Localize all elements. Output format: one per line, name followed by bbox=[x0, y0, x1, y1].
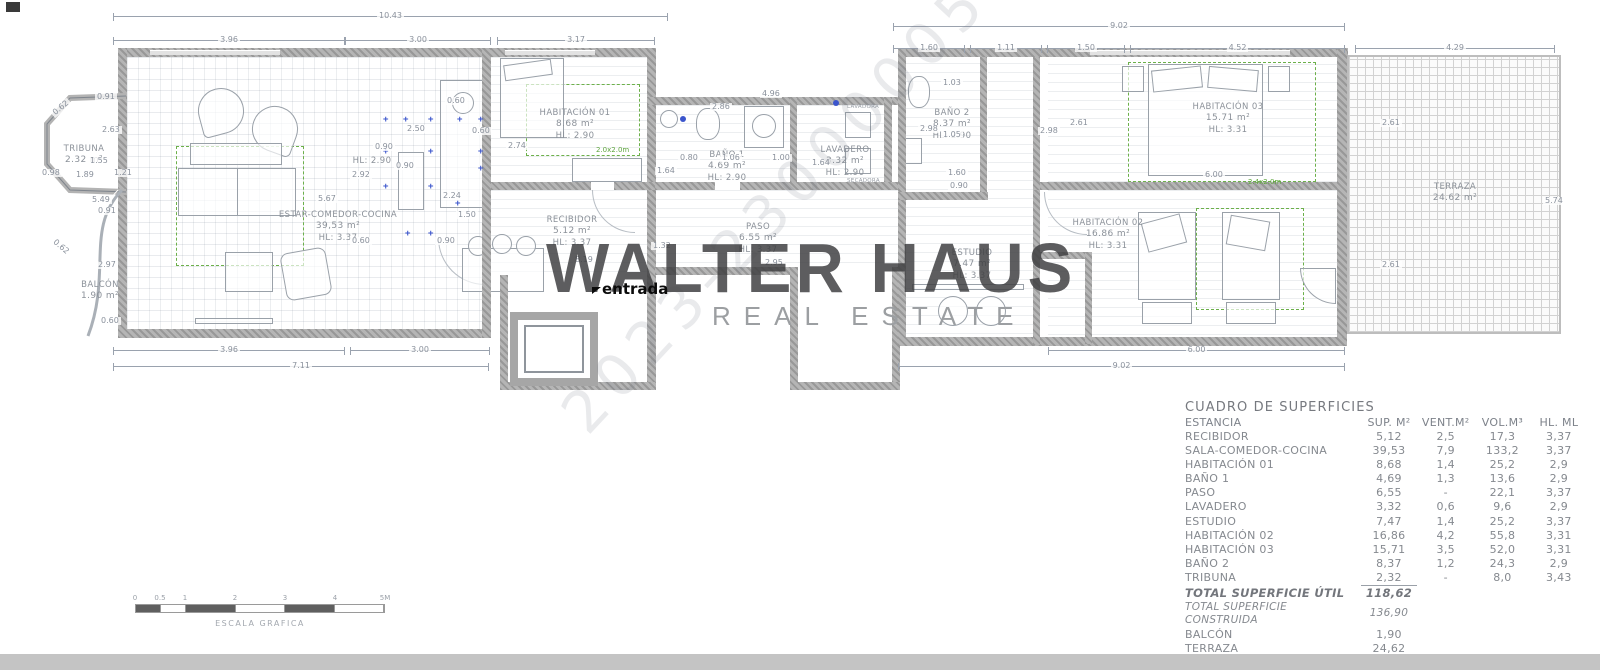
dining-chair bbox=[516, 236, 536, 256]
dim-label: 2.98 bbox=[918, 125, 940, 133]
shower-drain bbox=[752, 114, 776, 138]
sideboard bbox=[190, 143, 282, 165]
dimension-line: 4.52 bbox=[1130, 48, 1345, 52]
dining-chair bbox=[492, 234, 512, 254]
dimension-line: 3.00 bbox=[350, 350, 490, 354]
floor-hall bbox=[988, 63, 1033, 192]
plumbing-mark: + bbox=[478, 165, 483, 174]
room-label-hab03: HABITACIÓN 0315.71 m²HL: 3.31 bbox=[1193, 102, 1264, 136]
wardrobe bbox=[572, 158, 642, 182]
scale-bar: 0 0.5 1 2 3 4 5M ESCALA GRAFICA bbox=[135, 594, 385, 628]
dim-label: 1.05 bbox=[941, 131, 963, 139]
dim-label: 0.60 bbox=[470, 127, 492, 135]
wall bbox=[1040, 182, 1345, 190]
dim-label: 6.00 bbox=[1203, 171, 1225, 179]
wall bbox=[898, 192, 988, 200]
dim-label: 4.96 bbox=[760, 90, 782, 98]
scale-bar-caption: ESCALA GRAFICA bbox=[135, 619, 385, 628]
wall bbox=[898, 337, 1345, 346]
sink bbox=[660, 110, 678, 128]
dim-label: 1.06 bbox=[720, 154, 742, 162]
dim-label: 2.61 bbox=[1380, 261, 1402, 269]
dim-label: 1.21 bbox=[112, 169, 134, 177]
dim-label: 0.60 bbox=[99, 317, 121, 325]
surface-table-header: ESTANCIA SUP. M² VENT.M² VOL.M³ HL. ML bbox=[1185, 416, 1587, 430]
entrance-arrow-icon bbox=[592, 287, 601, 294]
toilet bbox=[696, 108, 720, 140]
dimension-line: 9.02 bbox=[898, 366, 1345, 370]
plumbing-mark: + bbox=[478, 116, 483, 125]
dim-label: 0.90 bbox=[394, 162, 416, 170]
plumbing-mark: + bbox=[428, 116, 433, 125]
nightstand bbox=[1268, 66, 1290, 92]
surface-table-title: CUADRO DE SUPERFICIES bbox=[1185, 400, 1587, 415]
corner-mark bbox=[6, 2, 20, 12]
plumbing-mark: + bbox=[428, 183, 433, 192]
dimension-line: 3.17 bbox=[497, 40, 655, 44]
dim-label: 2.97 bbox=[96, 261, 118, 269]
brand-watermark-sub: REAL ESTATE bbox=[712, 301, 1026, 332]
bottom-border-strip bbox=[0, 654, 1600, 670]
bed-bench bbox=[1142, 302, 1192, 324]
dim-label: 0.60 bbox=[350, 237, 372, 245]
dim-label: 5.67 bbox=[316, 195, 338, 203]
wall bbox=[482, 48, 491, 338]
plumbing-mark: + bbox=[405, 230, 410, 239]
dim-label: 1.50 bbox=[456, 211, 478, 219]
dim-label: 2.50 bbox=[405, 125, 427, 133]
dim-label: 0.90 bbox=[373, 143, 395, 151]
table-row: BALCÓN1,90 bbox=[1185, 628, 1587, 642]
clearance-label-hab03: 2.4x2.0m bbox=[1248, 178, 1281, 186]
plumbing-mark: + bbox=[478, 148, 483, 157]
sofa bbox=[178, 168, 296, 216]
scale-bar-segments bbox=[135, 604, 385, 613]
dim-label: 5.74 bbox=[1543, 197, 1565, 205]
elevator-car bbox=[524, 325, 584, 373]
entrance-label: entrada bbox=[592, 280, 668, 298]
room-label-cocina-hl: HL: 2.90 bbox=[353, 156, 392, 167]
dim-label: 0.60 bbox=[445, 97, 467, 105]
wall bbox=[655, 182, 715, 190]
table-total-construida: TOTAL SUPERFICIE CONSTRUIDA136,90 bbox=[1185, 601, 1587, 628]
plumbing-mark: + bbox=[457, 116, 462, 125]
dim-label: 1.89 bbox=[74, 171, 96, 179]
table-row: HABITACIÓN 018,681,425,22,9 bbox=[1185, 458, 1587, 472]
sink bbox=[904, 138, 922, 164]
window bbox=[505, 50, 595, 55]
appliance-label-secadora: SECADORA bbox=[847, 178, 880, 184]
room-label-hab01: HABITACIÓN 018.68 m²HL: 2.90 bbox=[540, 108, 611, 142]
dim-label: 1.03 bbox=[941, 79, 963, 87]
plumbing-mark: + bbox=[383, 116, 388, 125]
wall bbox=[491, 182, 591, 190]
dim-label: 2.63 bbox=[100, 126, 122, 134]
dim-label: 2.86 bbox=[710, 103, 732, 111]
bed-bench bbox=[1226, 302, 1276, 324]
table-row: SALA-COMEDOR-COCINA39,537,9133,23,37 bbox=[1185, 444, 1587, 458]
wall bbox=[500, 275, 508, 390]
dimension-line: 10.43 bbox=[113, 16, 668, 20]
dim-label: 5.49 bbox=[90, 196, 112, 204]
table-row: HABITACIÓN 0216,864,255,83,31 bbox=[1185, 529, 1587, 543]
scale-bar-labels: 0 0.5 1 2 3 4 5M bbox=[135, 594, 385, 604]
dimension-line: 1.11 bbox=[970, 48, 1042, 52]
dimension-line: 1.50 bbox=[1047, 48, 1125, 52]
dimension-line: 7.11 bbox=[113, 366, 489, 370]
nightstand bbox=[1122, 66, 1144, 92]
dimension-line: 4.29 bbox=[1355, 48, 1555, 52]
plumbing-mark: + bbox=[428, 148, 433, 157]
table-row: TRIBUNA2,32-8,03,43 bbox=[1185, 571, 1587, 586]
tribuna-bay-outline bbox=[38, 88, 128, 198]
dim-label: 2.74 bbox=[506, 142, 528, 150]
wall bbox=[614, 182, 656, 190]
surface-table: CUADRO DE SUPERFICIES ESTANCIA SUP. M² V… bbox=[1185, 400, 1587, 656]
dim-label: 2.98 bbox=[1038, 127, 1060, 135]
wall bbox=[1337, 48, 1347, 346]
table-row: PASO6,55-22,13,37 bbox=[1185, 486, 1587, 500]
plumbing-mark: + bbox=[383, 183, 388, 192]
wall bbox=[790, 382, 900, 390]
lounge-chair bbox=[279, 246, 333, 301]
dim-label: 2.24 bbox=[441, 192, 463, 200]
dim-label: 0.90 bbox=[948, 182, 970, 190]
dim-label: 0.91 bbox=[95, 93, 117, 101]
floorplan-canvas: 2.0x2.0m 2.4x2.0m + + + + + + + bbox=[0, 0, 1600, 670]
dimension-line: 3.00 bbox=[345, 40, 491, 44]
dim-label: 2.61 bbox=[1068, 119, 1090, 127]
room-label-balcon: BALCÓN1.90 m² bbox=[81, 280, 119, 303]
plumbing-mark: + bbox=[455, 200, 460, 209]
table-row: BAÑO 14,691,313,62,9 bbox=[1185, 472, 1587, 486]
dim-label: 0.90 bbox=[435, 237, 457, 245]
window bbox=[150, 50, 280, 55]
table-total-util: TOTAL SUPERFICIE ÚTIL118,62 bbox=[1185, 585, 1587, 600]
table-row: HABITACIÓN 0315,713,552,03,31 bbox=[1185, 543, 1587, 557]
pillow bbox=[1207, 66, 1259, 92]
dim-label: 0.80 bbox=[678, 154, 700, 162]
table-row: ESTUDIO7,471,425,23,37 bbox=[1185, 515, 1587, 529]
tv-cabinet bbox=[195, 318, 273, 324]
dim-label: 0.91 bbox=[96, 207, 118, 215]
dim-label: 2.61 bbox=[1380, 119, 1402, 127]
dim-label: 2.92 bbox=[350, 171, 372, 179]
room-label-terraza: TERRAZA24.62 m² bbox=[1433, 182, 1477, 205]
dim-label: 1.55 bbox=[88, 157, 110, 165]
clearance-label-hab01: 2.0x2.0m bbox=[596, 146, 629, 154]
dimension-line: 3.96 bbox=[113, 350, 345, 354]
dimension-line: 3.96 bbox=[113, 40, 345, 44]
coffee-table bbox=[225, 252, 273, 292]
dim-label: 1.60 bbox=[946, 169, 968, 177]
room-label-hab02: HABITACIÓN 0216.86 m²HL: 3.31 bbox=[1073, 218, 1144, 252]
plumbing-mark: + bbox=[428, 230, 433, 239]
dimension-line: 6.00 bbox=[1048, 350, 1345, 354]
wall bbox=[1085, 252, 1092, 344]
wall bbox=[118, 329, 491, 338]
wall bbox=[980, 57, 987, 200]
room-label-estar: ESTAR-COMEDOR-COCINA39,53 m²HL: 3.37 bbox=[279, 210, 397, 244]
dim-label: 1.64 bbox=[655, 167, 677, 175]
table-row: LAVADERO3,320,69,62,9 bbox=[1185, 500, 1587, 514]
table-row: RECIBIDOR5,122,517,33,37 bbox=[1185, 430, 1587, 444]
dim-label: 0.98 bbox=[40, 169, 62, 177]
water-point bbox=[680, 116, 686, 122]
table-row: BAÑO 28,371,224,32,9 bbox=[1185, 557, 1587, 571]
